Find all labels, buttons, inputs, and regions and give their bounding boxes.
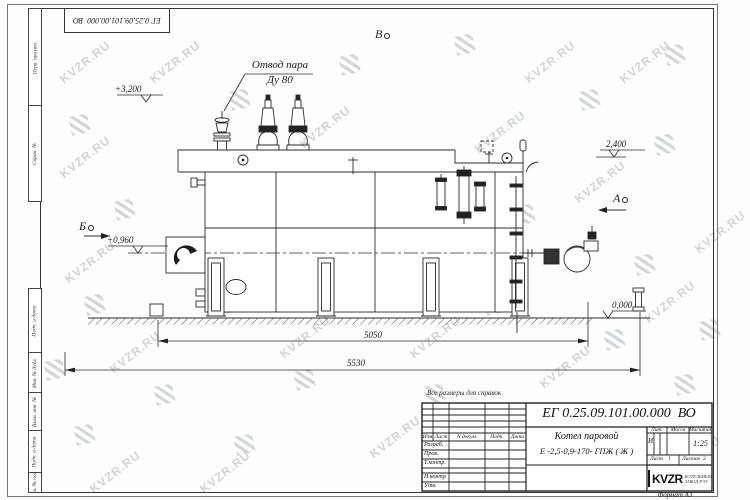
tb-lit-value: И: [647, 437, 654, 445]
kvzr-logo-subtext: КОТЕЛЬНЫЙ ЗАВОД РЭУ: [685, 474, 712, 484]
tb-row-razrab: Разраб.: [424, 442, 443, 448]
kvzr-logo-text: KVZR: [652, 472, 683, 486]
margin-label: Инв. № подл.: [32, 472, 38, 493]
blueprint-page: KVZR.RUKVZR.RUKVZR.RUKVZR.RUKVZR.RUKVZR.…: [0, 0, 750, 500]
tb-massa-label: Масса: [667, 427, 689, 433]
tb-row-utv: Утв.: [424, 483, 436, 489]
top-stamp-doc-number: ЕГ 0.25.09.101.00.000 ВО: [73, 16, 161, 25]
margin-label: Справ. №: [32, 142, 38, 164]
tb-row-tkontr: Т.контр.: [424, 460, 446, 466]
margin-cell-perv-primen: Перв. примен.: [28, 8, 42, 107]
margin-cell-inv-podl: Инв. № подл.: [28, 472, 42, 493]
margin-cell-sprav-no: Справ. №: [28, 105, 42, 202]
title-block-name-line2: Е -2,5-0,9-170- ГПЖ ( Ж ): [528, 446, 645, 456]
margin-cell-podp-data-2: Подп. и дата: [28, 430, 42, 474]
tb-listov-label: Листов: [682, 456, 700, 462]
tb-header-data: Дата: [509, 434, 526, 440]
kvzr-logo-icon: [648, 470, 650, 487]
margin-label: Взам. инв. №: [32, 397, 38, 427]
margin-label: Инв. № дубл.: [32, 358, 38, 388]
tb-row-prov: Пров.: [424, 451, 438, 457]
title-block-name-line1: Котел паровой: [528, 431, 645, 442]
tb-listov-value: 2: [703, 456, 706, 462]
margin-cell-inv-dubl: Инв. № дубл.: [28, 352, 42, 394]
tb-header-list: Лист: [433, 434, 449, 440]
title-block-doc-number: ЕГ 0.25.09.101.00.000 ВО: [528, 406, 710, 422]
company-logo-cell: KVZR КОТЕЛЬНЫЙ ЗАВОД РЭУ: [649, 467, 711, 490]
tb-row-nkontr: Н.контр: [424, 474, 446, 480]
margin-label: Подп. и дата: [32, 436, 38, 467]
margin-cell-podp-data-1: Подп. и дата: [28, 288, 42, 354]
top-stamp-box: ЕГ 0.25.09.101.00.000 ВО: [64, 8, 170, 33]
tb-list-value: 1: [668, 456, 671, 462]
tb-header-izm: Изм: [422, 434, 433, 440]
margin-label: Перв. примен.: [32, 41, 38, 74]
tb-list-label: Лист: [650, 456, 663, 462]
tb-header-ndokum: N докум.: [449, 434, 485, 440]
tb-masshtab-value: 1:25: [689, 439, 712, 448]
tb-lit-label: Лит.: [647, 427, 667, 433]
tb-header-podp: Подп.: [485, 434, 509, 440]
kvzr-sub-line2: ЗАВОД РЭУ: [685, 479, 712, 484]
margin-cell-vzam-inv: Взам. инв. №: [28, 392, 42, 432]
margin-label: Подп. и дата: [32, 305, 38, 336]
format-label: Формат А3: [630, 491, 720, 499]
tb-masshtab-label: Масштаб: [689, 427, 712, 433]
